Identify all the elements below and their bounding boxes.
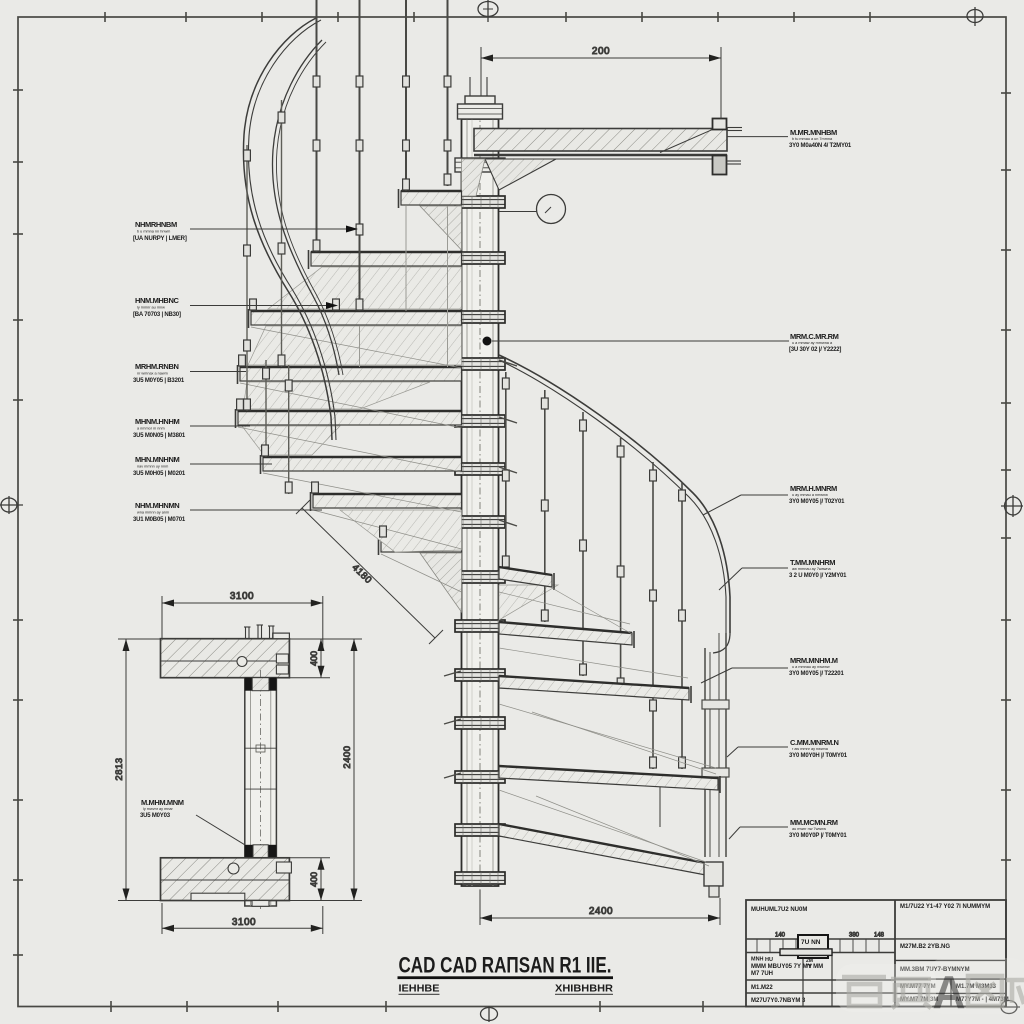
svg-text:nr wmnax a nawm: nr wmnax a nawm <box>137 372 168 376</box>
svg-text:7U NN: 7U NN <box>801 939 821 946</box>
svg-text:200: 200 <box>592 46 610 57</box>
svg-text:148: 148 <box>874 933 885 939</box>
svg-text:ly mmnr au mnw: ly mmnr au mnw <box>137 306 165 310</box>
svg-text:3100: 3100 <box>230 591 254 602</box>
svg-text:u a mmaw ay mmwna a: u a mmaw ay mmwna a <box>792 341 833 345</box>
svg-text:3Y0 M0Y05 |/ T02Y01: 3Y0 M0Y05 |/ T02Y01 <box>789 499 845 505</box>
svg-text:MUHUML7U2 NU0M: MUHUML7U2 NU0M <box>751 907 807 913</box>
svg-text:3U5 M0N05 | M3801: 3U5 M0N05 | M3801 <box>133 433 186 439</box>
svg-text:3U5 M0H05 | M0201: 3U5 M0H05 | M0201 <box>133 471 186 477</box>
svg-text:M1/7U22 Y1-47 Y02 7I NUMMYM: M1/7U22 Y1-47 Y02 7I NUMMYM <box>900 904 990 910</box>
svg-text:au mwnr nw 7wwnw: au mwnr nw 7wwnw <box>792 827 826 831</box>
svg-text:M27U7Y0.7NBYM 3: M27U7Y0.7NBYM 3 <box>751 998 806 1004</box>
svg-text:MHNM.HNHM: MHNM.HNHM <box>135 417 179 426</box>
svg-text:wna mmnn ay anm: wna mmnn ay anm <box>137 511 169 515</box>
svg-text:r aw mmnr ay nwwna: r aw mmnr ay nwwna <box>792 747 829 751</box>
svg-text:M7 7UH: M7 7UH <box>751 971 773 977</box>
svg-text:M.MHM.MNM: M.MHM.MNM <box>141 798 184 807</box>
svg-text:u a mmnau ay nwwnw: u a mmnau ay nwwnw <box>792 665 830 669</box>
svg-text:HU: HU <box>765 957 773 963</box>
svg-text:u ay mmau a nmwnw: u ay mmau a nmwnw <box>792 493 828 497</box>
svg-text:2400: 2400 <box>342 745 353 768</box>
svg-text:MHN.MNHNM: MHN.MNHNM <box>135 455 179 464</box>
svg-text:MRM.MNHM.M: MRM.MNHM.M <box>790 656 838 665</box>
svg-text:3U5 M0Y03: 3U5 M0Y03 <box>140 813 171 819</box>
svg-text:140: 140 <box>775 933 786 939</box>
svg-text:aw mmnau ay 7wawna: aw mmnau ay 7wawna <box>792 567 832 571</box>
svg-text:7Y: 7Y <box>806 964 813 970</box>
svg-text:M1.M22: M1.M22 <box>751 985 773 991</box>
svg-text:NHMRHNBM: NHMRHNBM <box>135 220 177 229</box>
svg-text:3Y0 M0Y0H |/ T0MY01: 3Y0 M0Y0H |/ T0MY01 <box>789 753 848 759</box>
svg-text:[3U 30Y 02 |/ Y2222]: [3U 30Y 02 |/ Y2222] <box>789 347 841 353</box>
svg-text:3Y0 M0a40N 4/ T2MY01: 3Y0 M0a40N 4/ T2MY01 <box>789 143 852 149</box>
svg-text:400: 400 <box>309 872 319 887</box>
svg-text:MMM MBUY05 7Y MY MM: MMM MBUY05 7Y MY MM <box>751 964 823 970</box>
svg-text:[BA 70703 | NB30]: [BA 70703 | NB30] <box>133 312 181 318</box>
svg-text:CAD CAD RAΠSAN R1 IIE.: CAD CAD RAΠSAN R1 IIE. <box>399 953 612 978</box>
svg-text:MM.MCMN.RM: MM.MCMN.RM <box>790 818 838 827</box>
svg-text:400: 400 <box>309 651 319 666</box>
svg-text:A: A <box>932 966 965 1018</box>
svg-text:380: 380 <box>849 933 860 939</box>
svg-text:C.MM.MNRM.N: C.MM.MNRM.N <box>790 738 839 747</box>
svg-text:3Y0 M0Y0P |/ T0MY01: 3Y0 M0Y0P |/ T0MY01 <box>789 833 847 839</box>
svg-text:2400: 2400 <box>589 906 613 917</box>
svg-text:3U1 M0B05 | M0701: 3U1 M0B05 | M0701 <box>133 517 186 523</box>
svg-text:a nmmor m nnm: a nmmor m nnm <box>137 427 165 431</box>
svg-text:M.MR.MNHBM: M.MR.MNHBM <box>790 128 837 137</box>
svg-text:2813: 2813 <box>114 757 125 780</box>
svg-text:3 2 U M0Y0 |/ Y2MY01: 3 2 U M0Y0 |/ Y2MY01 <box>789 573 847 579</box>
svg-text:b u mmna nn hnwm: b u mmna nn hnwm <box>137 230 170 234</box>
svg-text:[UA NURPY | LMER]: [UA NURPY | LMER] <box>133 236 187 242</box>
svg-text:XHIBHBHR: XHIBHBHR <box>555 984 614 995</box>
svg-text:MNH: MNH <box>751 957 764 963</box>
svg-text:HNM.MHBNC: HNM.MHBNC <box>135 296 179 305</box>
svg-text:MRM.C.MR.RM: MRM.C.MR.RM <box>790 332 839 341</box>
svg-text:MRHM.RNBN: MRHM.RNBN <box>135 362 178 371</box>
svg-text:3100: 3100 <box>232 917 256 928</box>
svg-text:3U5 M0Y05 | B3201: 3U5 M0Y05 | B3201 <box>133 378 185 384</box>
svg-text:ly mwvnr ay mnar: ly mwvnr ay mnar <box>143 807 173 811</box>
svg-text:M27M.B2 2YB.NG: M27M.B2 2YB.NG <box>900 944 950 950</box>
svg-text:MRM.H.MNRM: MRM.H.MNRM <box>790 484 837 493</box>
svg-text:3Y0 M0Y05 |/ T22201: 3Y0 M0Y05 |/ T22201 <box>789 671 844 677</box>
svg-text:nav mmnn uy nnm: nav mmnn uy nnm <box>137 465 168 469</box>
svg-text:T.MM.MNHRM: T.MM.MNHRM <box>790 558 835 567</box>
svg-text:IEHHBE: IEHHBE <box>399 984 440 995</box>
svg-text:NHM.MHNMN: NHM.MHNMN <box>135 501 179 510</box>
svg-text:b tu mmau a un 7mmna: b tu mmau a un 7mmna <box>792 137 833 141</box>
